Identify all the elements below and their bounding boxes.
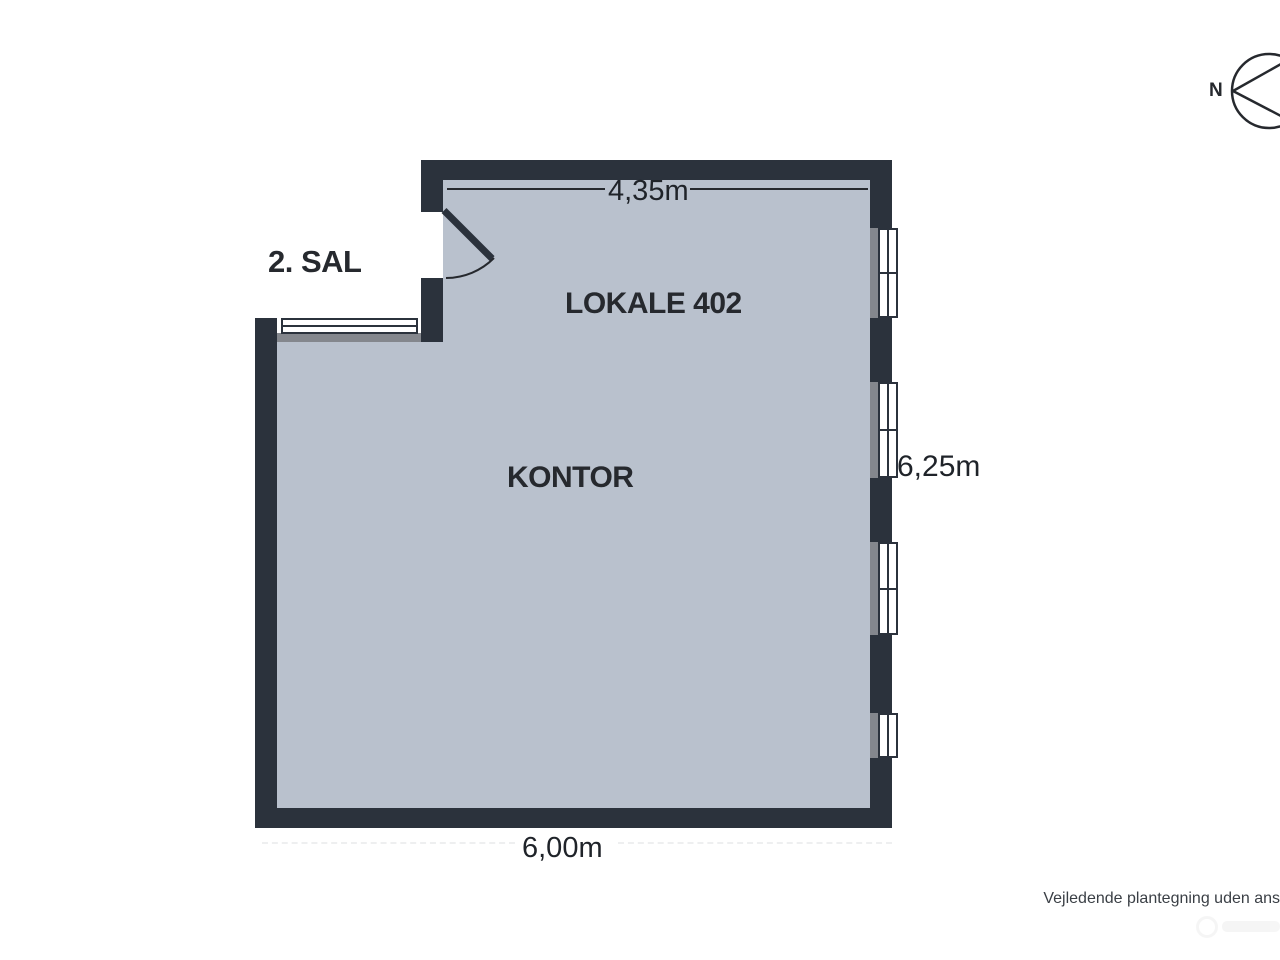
wall-upper-left-below-door [421, 278, 443, 342]
disclaimer-text: Vejledende plantegning uden ans [1043, 890, 1280, 908]
dimension-top: 4,35m [608, 175, 689, 208]
wall-right-segment-3 [870, 478, 892, 542]
wall-right-segment-4 [870, 635, 892, 713]
window-mullion-line [880, 429, 896, 431]
room-name-label: LOKALE 402 [565, 287, 742, 321]
window-right-2-icon [878, 382, 898, 478]
watermark-circle-icon [1196, 916, 1218, 938]
window-mullion-line [880, 588, 896, 590]
window-pane-line [887, 715, 889, 756]
floor-plan-page: 2. SAL LOKALE 402 KONTOR 4,35m 6,25m 6,0… [0, 0, 1280, 960]
faint-dash-right [618, 842, 892, 844]
watermark-bar [1222, 921, 1280, 932]
window-mullion-line [880, 272, 896, 274]
wall-right-segment-1 [870, 180, 892, 228]
dimension-right: 6,25m [897, 450, 980, 484]
window-right-4-icon [878, 713, 898, 758]
window-pane-line [283, 325, 416, 327]
wall-upper-left-above-door [421, 180, 443, 212]
compass-north-label: N [1209, 80, 1223, 102]
room-type-label: KONTOR [507, 461, 633, 495]
wall-bottom [255, 808, 892, 828]
window-right-1-icon [878, 228, 898, 318]
floor-label: 2. SAL [268, 244, 361, 280]
wall-left [255, 318, 277, 808]
window-right-3-icon [878, 542, 898, 635]
dimension-line-top-right [690, 188, 868, 190]
compass-icon [1232, 54, 1280, 128]
dimension-line-top-left [447, 188, 605, 190]
floor-area-lower [277, 342, 443, 808]
faint-dash-left [262, 842, 515, 844]
wall-right-segment-2 [870, 318, 892, 382]
window-top-left-icon [281, 318, 418, 334]
window-sill-top-left [277, 333, 421, 342]
wall-right-segment-5 [870, 758, 892, 808]
dimension-bottom: 6,00m [522, 832, 603, 865]
